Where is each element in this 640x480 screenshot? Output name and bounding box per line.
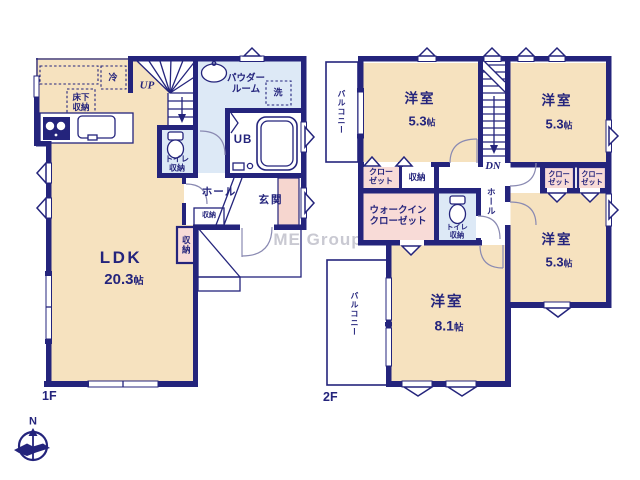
wall bbox=[193, 225, 198, 388]
bed2-size-unit: 帖 bbox=[564, 120, 573, 130]
room-bed2 bbox=[510, 63, 606, 162]
window-chevron bbox=[37, 198, 46, 218]
window-chevron bbox=[484, 48, 500, 56]
label-floor2: 2F bbox=[323, 390, 338, 404]
window-end bbox=[385, 322, 392, 327]
window bbox=[386, 278, 392, 320]
label-bed3-name: 洋室 bbox=[542, 232, 573, 248]
window-chevron bbox=[305, 127, 314, 147]
door-gap bbox=[400, 240, 424, 246]
door-gap bbox=[476, 216, 481, 238]
window-chevron bbox=[549, 48, 565, 56]
label-entrance: 玄関 bbox=[259, 194, 284, 206]
label-bed3-size: 5.3帖 bbox=[546, 254, 573, 269]
burner bbox=[46, 122, 54, 130]
door-arc-toilet2f bbox=[478, 216, 500, 239]
toilet-bowl bbox=[450, 205, 466, 224]
window bbox=[46, 163, 52, 183]
label-bed2-name: 洋室 bbox=[542, 93, 573, 109]
window-end bbox=[158, 381, 165, 387]
label-bath: UB bbox=[234, 134, 253, 148]
porch-step bbox=[198, 277, 240, 291]
window bbox=[386, 328, 392, 366]
stair-arrowhead bbox=[178, 114, 186, 123]
label-fridge: 冷 bbox=[108, 73, 117, 84]
wall bbox=[540, 162, 544, 193]
ldk-size-unit: 帖 bbox=[134, 276, 144, 287]
door-gap bbox=[450, 162, 478, 167]
wall bbox=[358, 240, 400, 246]
burner bbox=[57, 122, 65, 130]
label-ldk-size: 20.3帖 bbox=[104, 271, 143, 289]
label-up: UP bbox=[140, 80, 155, 93]
label-walkin-closet: ウォークイン クローゼット bbox=[369, 205, 426, 227]
label-underfloor-storage: 床下 収納 bbox=[72, 92, 89, 112]
window-chevron bbox=[609, 201, 618, 219]
label-balcony-top: バルコニー bbox=[337, 90, 345, 135]
wall bbox=[193, 56, 198, 178]
label-closet-a: クロー ゼット bbox=[369, 168, 393, 187]
wall bbox=[358, 188, 481, 194]
wall bbox=[606, 56, 612, 308]
label-hall-1f: ホール bbox=[202, 186, 237, 198]
bed3-size-unit: 帖 bbox=[564, 258, 573, 268]
room-powder-strip bbox=[198, 108, 229, 173]
window bbox=[34, 76, 39, 97]
bathtub bbox=[257, 117, 297, 170]
label-closet-b: クロー ゼット bbox=[548, 171, 570, 188]
wall bbox=[128, 56, 133, 93]
label-toilet-1f: トイレ 収納 bbox=[165, 155, 189, 174]
label-ldk-name: LDK bbox=[100, 248, 142, 268]
bath-door-fold bbox=[231, 113, 238, 133]
wall bbox=[505, 162, 612, 168]
label-toilet-2f: トイレ 収納 bbox=[446, 224, 468, 241]
window-chevron bbox=[244, 48, 260, 56]
label-bed4-size: 8.1帖 bbox=[435, 318, 464, 335]
door-gap bbox=[240, 225, 274, 231]
wall bbox=[225, 173, 306, 178]
window bbox=[240, 56, 264, 62]
window bbox=[446, 381, 476, 387]
bed4-size-num: 8.1 bbox=[435, 318, 454, 334]
wall bbox=[399, 164, 402, 190]
wall bbox=[157, 125, 198, 130]
door-arc-entrance bbox=[242, 227, 272, 256]
vanity-sink bbox=[202, 64, 227, 82]
window bbox=[46, 198, 52, 218]
window-chevron bbox=[419, 48, 435, 56]
window-end bbox=[45, 339, 52, 344]
door-gap bbox=[505, 202, 511, 225]
porch bbox=[198, 228, 301, 277]
wall bbox=[505, 302, 511, 387]
label-hall-2f: ホール bbox=[487, 188, 496, 217]
label-storage-2f: 収納 bbox=[408, 172, 425, 182]
bath-stool bbox=[233, 163, 244, 170]
window bbox=[549, 56, 565, 62]
window-end bbox=[45, 271, 52, 276]
label-ldk-storage: 収納 bbox=[182, 236, 191, 255]
label-closet-c: クロー ゼット bbox=[581, 171, 603, 188]
window bbox=[358, 92, 364, 134]
wall bbox=[225, 108, 230, 178]
window bbox=[484, 56, 501, 62]
window bbox=[518, 56, 534, 62]
bed3-size-num: 5.3 bbox=[546, 254, 564, 269]
label-washer: 洗 bbox=[273, 88, 282, 99]
window-chevron bbox=[518, 48, 534, 56]
wall bbox=[434, 162, 439, 245]
bath-drain bbox=[247, 163, 252, 168]
window-chevron bbox=[609, 127, 618, 145]
wall bbox=[182, 173, 186, 184]
window bbox=[402, 381, 432, 387]
door-gap bbox=[505, 163, 511, 186]
window-chevron bbox=[404, 387, 432, 396]
bed4-size-unit: 帖 bbox=[454, 323, 464, 334]
toilet-tank bbox=[450, 196, 465, 204]
wall bbox=[225, 108, 306, 113]
wall bbox=[128, 56, 307, 62]
label-balcony-bottom: バルコニー bbox=[350, 292, 358, 337]
label-bed4-name: 洋室 bbox=[431, 294, 464, 311]
window-end bbox=[82, 381, 89, 387]
wall bbox=[478, 56, 483, 167]
label-hall-storage: 収納 bbox=[202, 212, 216, 220]
label-dn: DN bbox=[485, 161, 500, 173]
window bbox=[418, 56, 436, 62]
window-chevron bbox=[546, 308, 570, 317]
bed1-size-unit: 帖 bbox=[427, 117, 436, 127]
wall bbox=[34, 97, 40, 146]
porch-diagonal bbox=[198, 228, 240, 277]
label-bed1-name: 洋室 bbox=[405, 91, 436, 107]
floorplan-page: ME Group bbox=[0, 0, 640, 480]
label-bed1-size: 5.3帖 bbox=[409, 113, 436, 128]
window-end bbox=[357, 134, 364, 139]
compass-icon bbox=[14, 428, 50, 460]
wall bbox=[182, 203, 186, 225]
wall bbox=[157, 173, 198, 178]
toilet-tank bbox=[168, 132, 183, 140]
window bbox=[544, 302, 570, 308]
burner-dot bbox=[55, 134, 58, 137]
window-chevron bbox=[448, 387, 476, 396]
label-compass-north: N bbox=[29, 416, 37, 429]
wall bbox=[157, 125, 162, 178]
wall bbox=[358, 56, 364, 245]
window-chevron bbox=[37, 163, 46, 183]
bed2-size-num: 5.3 bbox=[546, 116, 564, 131]
ldk-size-num: 20.3 bbox=[104, 271, 133, 288]
room-bed4 bbox=[391, 245, 505, 381]
label-powder-room: パウダー ルーム bbox=[227, 73, 265, 95]
window-end bbox=[357, 88, 364, 93]
faucet bbox=[88, 135, 97, 140]
label-bed2-size: 5.3帖 bbox=[546, 116, 573, 131]
label-floor1: 1F bbox=[42, 389, 57, 403]
window-chevron bbox=[305, 193, 314, 213]
bed1-size-num: 5.3 bbox=[409, 113, 427, 128]
wall bbox=[434, 240, 482, 246]
